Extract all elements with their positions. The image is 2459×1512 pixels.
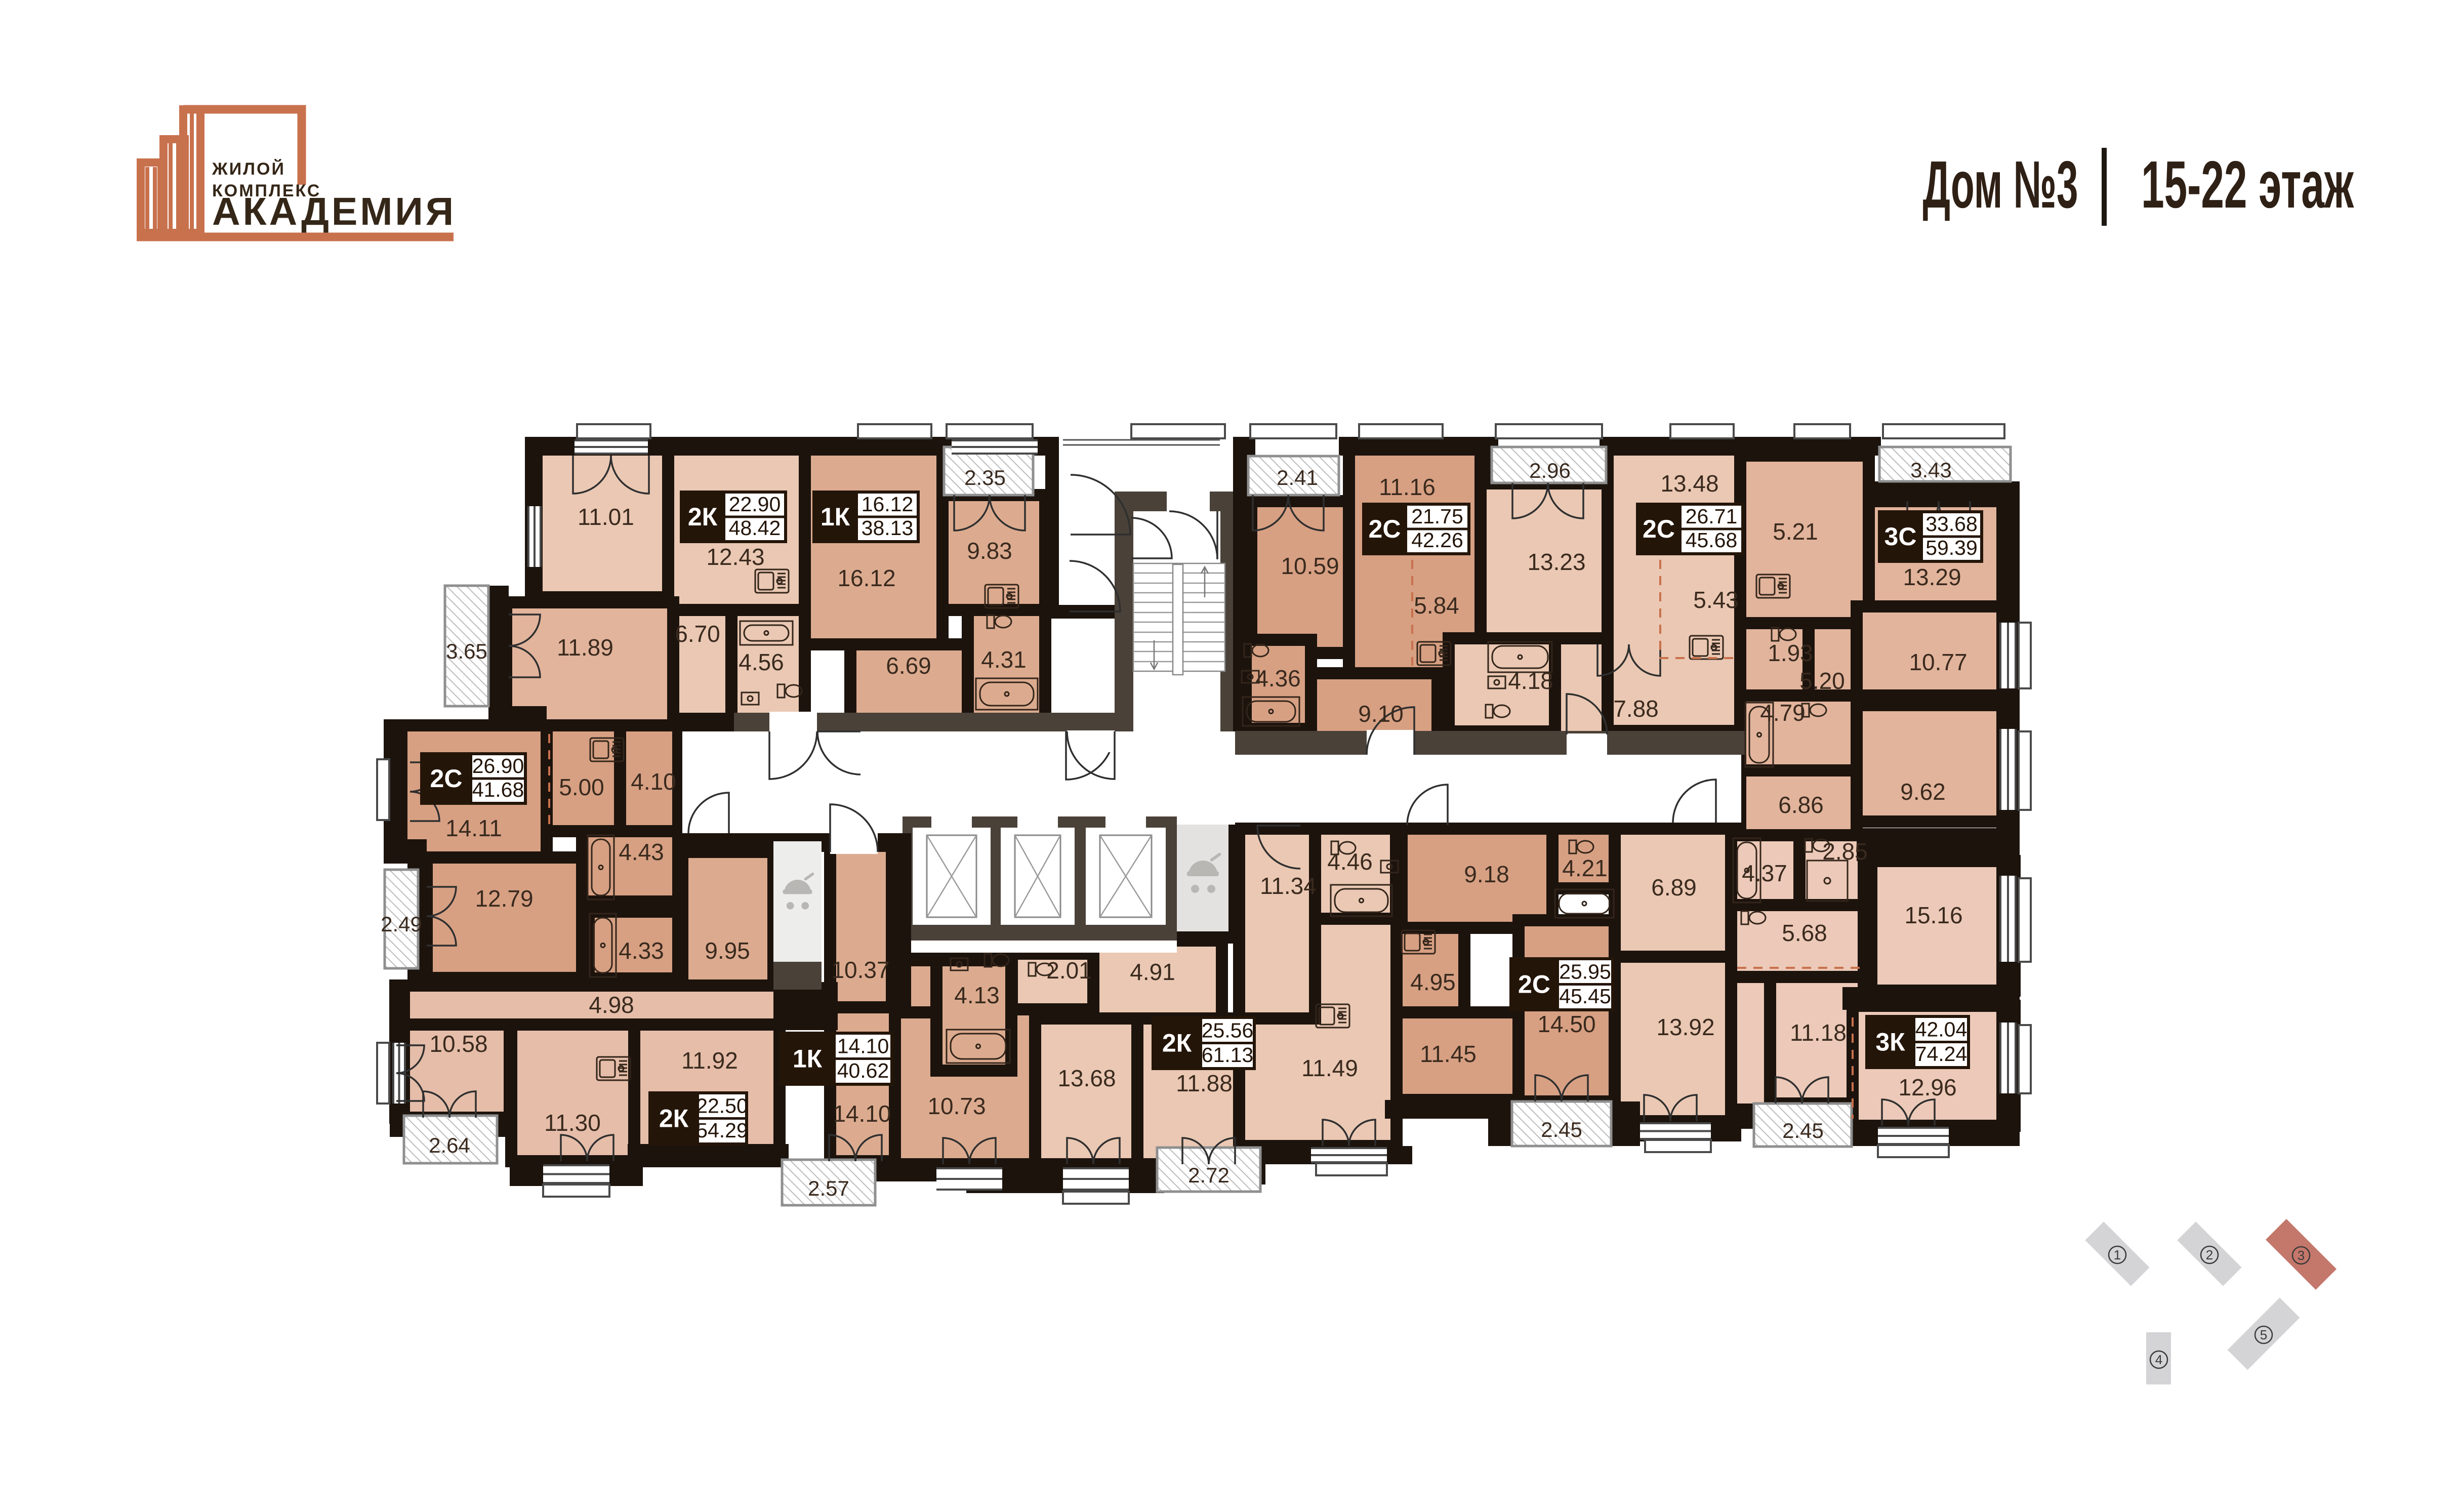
svg-text:11.01: 11.01 (578, 504, 634, 530)
svg-text:9.18: 9.18 (1464, 861, 1509, 887)
svg-text:1К: 1К (793, 1045, 823, 1073)
svg-text:10.73: 10.73 (927, 1093, 986, 1119)
svg-text:13.29: 13.29 (1903, 564, 1961, 590)
svg-text:13.68: 13.68 (1057, 1065, 1116, 1091)
svg-text:6.69: 6.69 (886, 652, 931, 679)
svg-text:5.00: 5.00 (559, 774, 604, 800)
svg-text:12.43: 12.43 (706, 544, 764, 570)
svg-text:45.68: 45.68 (1686, 528, 1738, 552)
svg-text:5.21: 5.21 (1773, 518, 1818, 545)
svg-text:40.62: 40.62 (837, 1059, 889, 1082)
svg-text:1.93: 1.93 (1768, 640, 1813, 666)
svg-text:11.34: 11.34 (1260, 873, 1317, 899)
svg-text:26.90: 26.90 (472, 754, 524, 778)
svg-text:2.72: 2.72 (1188, 1163, 1229, 1187)
svg-text:2С: 2С (430, 764, 463, 793)
svg-text:61.13: 61.13 (1202, 1043, 1254, 1067)
svg-text:25.95: 25.95 (1559, 960, 1611, 984)
svg-text:16.12: 16.12 (837, 565, 895, 591)
svg-text:4.36: 4.36 (1255, 665, 1301, 691)
svg-text:13.23: 13.23 (1527, 549, 1585, 575)
svg-text:7.88: 7.88 (1613, 696, 1659, 722)
svg-text:5: 5 (2260, 1327, 2267, 1342)
svg-text:33.68: 33.68 (1925, 512, 1978, 536)
svg-text:4.21: 4.21 (1562, 855, 1608, 881)
svg-text:11.16: 11.16 (1379, 474, 1436, 500)
svg-text:4.98: 4.98 (589, 992, 634, 1018)
svg-text:2.57: 2.57 (808, 1176, 849, 1200)
svg-text:14.10: 14.10 (833, 1100, 891, 1127)
svg-text:4.31: 4.31 (981, 646, 1027, 673)
svg-text:9.95: 9.95 (705, 937, 750, 964)
svg-text:59.39: 59.39 (1925, 536, 1978, 559)
svg-text:54.29: 54.29 (696, 1119, 748, 1142)
svg-text:АКАДЕМИЯ: АКАДЕМИЯ (212, 190, 456, 233)
svg-text:4.13: 4.13 (954, 982, 1000, 1008)
svg-text:3.43: 3.43 (1910, 458, 1952, 482)
svg-text:15-22 этаж: 15-22 этаж (2141, 148, 2354, 222)
svg-text:12.79: 12.79 (475, 885, 533, 912)
svg-text:42.04: 42.04 (1915, 1018, 1968, 1041)
svg-text:25.56: 25.56 (1202, 1019, 1254, 1042)
svg-text:41.68: 41.68 (472, 778, 524, 801)
svg-text:2С: 2С (1369, 515, 1401, 543)
svg-text:2.64: 2.64 (429, 1133, 470, 1157)
svg-text:2К: 2К (659, 1105, 689, 1133)
svg-text:22.50: 22.50 (696, 1094, 748, 1118)
svg-text:4.91: 4.91 (1130, 959, 1175, 985)
svg-text:4.79: 4.79 (1760, 700, 1806, 726)
svg-text:2.45: 2.45 (1782, 1119, 1824, 1142)
svg-text:2.96: 2.96 (1529, 459, 1571, 482)
svg-text:3: 3 (2298, 1248, 2305, 1263)
svg-text:48.42: 48.42 (729, 516, 781, 540)
svg-text:2С: 2С (1643, 515, 1675, 543)
svg-text:12.96: 12.96 (1898, 1074, 1956, 1100)
svg-text:4.37: 4.37 (1742, 860, 1787, 886)
svg-text:2.41: 2.41 (1277, 466, 1318, 489)
svg-text:2: 2 (2206, 1247, 2213, 1262)
svg-text:74.24: 74.24 (1915, 1042, 1968, 1066)
svg-text:10.59: 10.59 (1281, 553, 1339, 579)
svg-text:4: 4 (2155, 1352, 2162, 1367)
svg-text:9.83: 9.83 (967, 538, 1012, 564)
svg-text:22.90: 22.90 (729, 493, 781, 516)
svg-text:26.71: 26.71 (1686, 505, 1738, 528)
svg-text:2С: 2С (1518, 970, 1550, 999)
svg-text:4.43: 4.43 (619, 839, 664, 865)
svg-text:10.58: 10.58 (429, 1031, 487, 1057)
svg-text:11.92: 11.92 (681, 1047, 738, 1074)
svg-text:10.77: 10.77 (1909, 649, 1967, 675)
svg-text:6.70: 6.70 (675, 621, 720, 647)
svg-text:5.20: 5.20 (1799, 668, 1845, 694)
svg-text:5.84: 5.84 (1414, 592, 1459, 619)
svg-text:45.45: 45.45 (1559, 985, 1611, 1008)
svg-text:2К: 2К (688, 503, 718, 531)
svg-text:14.50: 14.50 (1537, 1011, 1595, 1037)
svg-text:11.30: 11.30 (544, 1110, 601, 1136)
svg-text:4.56: 4.56 (739, 649, 784, 675)
svg-text:11.89: 11.89 (557, 634, 613, 661)
svg-text:2.85: 2.85 (1822, 838, 1868, 865)
svg-text:ЖИЛОЙ: ЖИЛОЙ (212, 159, 285, 179)
svg-text:1К: 1К (821, 503, 850, 531)
svg-text:9.10: 9.10 (1358, 701, 1404, 727)
svg-text:15.16: 15.16 (1904, 902, 1962, 928)
svg-text:21.75: 21.75 (1411, 505, 1463, 528)
svg-text:3.65: 3.65 (446, 639, 487, 663)
svg-text:9.62: 9.62 (1900, 779, 1946, 805)
svg-text:4.95: 4.95 (1410, 969, 1456, 995)
svg-text:42.26: 42.26 (1411, 528, 1463, 552)
svg-text:4.18: 4.18 (1508, 668, 1553, 694)
svg-text:4.46: 4.46 (1327, 848, 1373, 875)
svg-text:2.45: 2.45 (1541, 1118, 1582, 1141)
svg-text:10.37: 10.37 (831, 957, 889, 983)
svg-text:6.89: 6.89 (1651, 874, 1697, 901)
svg-text:11.88: 11.88 (1176, 1070, 1233, 1096)
svg-text:2.49: 2.49 (381, 912, 422, 936)
svg-text:16.12: 16.12 (862, 493, 914, 516)
svg-text:5.68: 5.68 (1782, 920, 1827, 946)
svg-text:2К: 2К (1162, 1029, 1192, 1057)
svg-text:38.13: 38.13 (862, 516, 914, 540)
svg-text:13.48: 13.48 (1660, 470, 1718, 497)
svg-text:1: 1 (2114, 1247, 2121, 1262)
svg-text:11.45: 11.45 (1420, 1041, 1477, 1067)
svg-text:5.43: 5.43 (1693, 587, 1739, 613)
svg-text:13.92: 13.92 (1656, 1014, 1714, 1040)
svg-text:3С: 3С (1884, 522, 1917, 551)
svg-text:4.10: 4.10 (631, 768, 676, 795)
svg-text:2.35: 2.35 (964, 466, 1006, 489)
svg-text:14.10: 14.10 (837, 1035, 889, 1058)
svg-text:Дом №3: Дом №3 (1922, 147, 2078, 222)
svg-text:3К: 3К (1875, 1028, 1905, 1056)
svg-text:11.18: 11.18 (1790, 1019, 1847, 1046)
svg-text:14.11: 14.11 (445, 815, 502, 841)
svg-text:6.86: 6.86 (1778, 792, 1824, 818)
svg-text:2.01: 2.01 (1046, 957, 1092, 984)
svg-text:4.33: 4.33 (619, 937, 664, 964)
svg-text:11.49: 11.49 (1301, 1055, 1358, 1081)
